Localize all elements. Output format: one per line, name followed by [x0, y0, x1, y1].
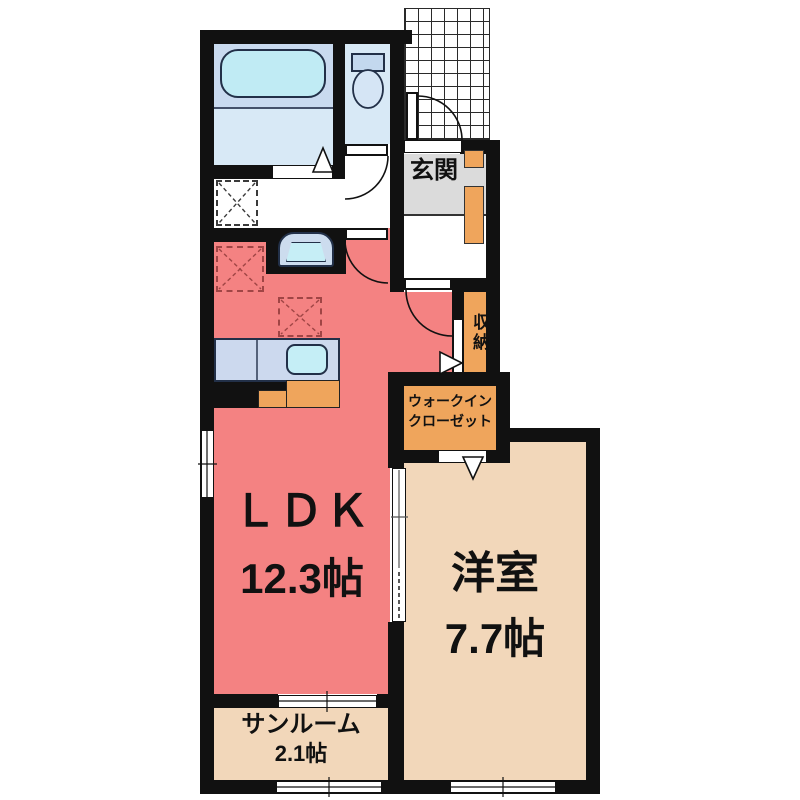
wall-washroom-bottom [200, 228, 270, 242]
kitchen-cabinet-step [258, 390, 287, 408]
shoe-cabinet-lower [464, 186, 484, 244]
wall-right-lower [586, 428, 600, 794]
wall-wic-top [390, 372, 510, 386]
washroom-door-leaf [345, 228, 388, 240]
wall-toilet-right [390, 30, 404, 292]
window-ldk-sunroom [278, 695, 377, 708]
wall-wic-right [496, 372, 510, 462]
entry-threshold [404, 140, 462, 153]
label-sunroom-name: サンルーム [214, 712, 388, 738]
washing-machine-space [216, 180, 258, 226]
bathroom-door-opening [272, 165, 333, 179]
wic-door-opening [438, 450, 487, 463]
cupboard-space [278, 297, 322, 337]
room-western-a [510, 442, 586, 780]
label-genkan: 玄関 [404, 158, 464, 184]
refrigerator-space [216, 246, 264, 292]
wall-top [200, 30, 412, 44]
wall-western-top [496, 428, 600, 442]
bathroom-floor [214, 109, 333, 165]
wall-sunroom-top-a [214, 694, 278, 708]
label-ldk-name: ＬＤＫ [214, 488, 390, 536]
label-western-size: 7.7帖 [404, 616, 586, 662]
window-western-south [450, 781, 556, 793]
toilet-door-leaf [345, 144, 388, 156]
wall-wic-bottom-a [390, 450, 438, 463]
kitchen-sink [286, 344, 328, 375]
kitchen-cabinet [286, 380, 340, 408]
label-wic-line1: ウォークイン [404, 394, 496, 409]
label-wic-line2: クローゼット [404, 414, 496, 429]
window-ldk-west [201, 430, 214, 498]
wall-bath-divider [333, 44, 345, 179]
toilet-tank [351, 53, 385, 72]
label-ldk-size: 12.3帖 [210, 556, 394, 602]
ldk-door-leaf [404, 278, 452, 290]
window-sunroom-south [276, 781, 382, 793]
label-sunroom-size: 2.1帖 [214, 742, 388, 766]
wall-bath-bottom [200, 165, 272, 179]
entry-door-leaf [406, 92, 418, 140]
floor-plan: 玄関 収納 ウォークイン クローゼット ＬＤＫ 12.3帖 洋室 7.7帖 サン… [0, 0, 800, 800]
ldk-western-sliding-door [392, 468, 406, 622]
washbasin-bowl [286, 242, 326, 262]
wall-sunroom-top-b [377, 694, 404, 708]
toilet-door-arc [345, 156, 388, 199]
label-western-name: 洋室 [404, 550, 586, 598]
bathtub [220, 49, 326, 98]
shoe-cabinet-upper [464, 150, 484, 168]
wall-kitchen-stub-a [204, 378, 258, 408]
wall-left [200, 30, 214, 794]
label-storage: 収納 [462, 294, 488, 372]
wall-center-lower [388, 622, 404, 794]
room-ldk-east [390, 292, 452, 372]
wall-wic-bottom-b [487, 450, 510, 463]
